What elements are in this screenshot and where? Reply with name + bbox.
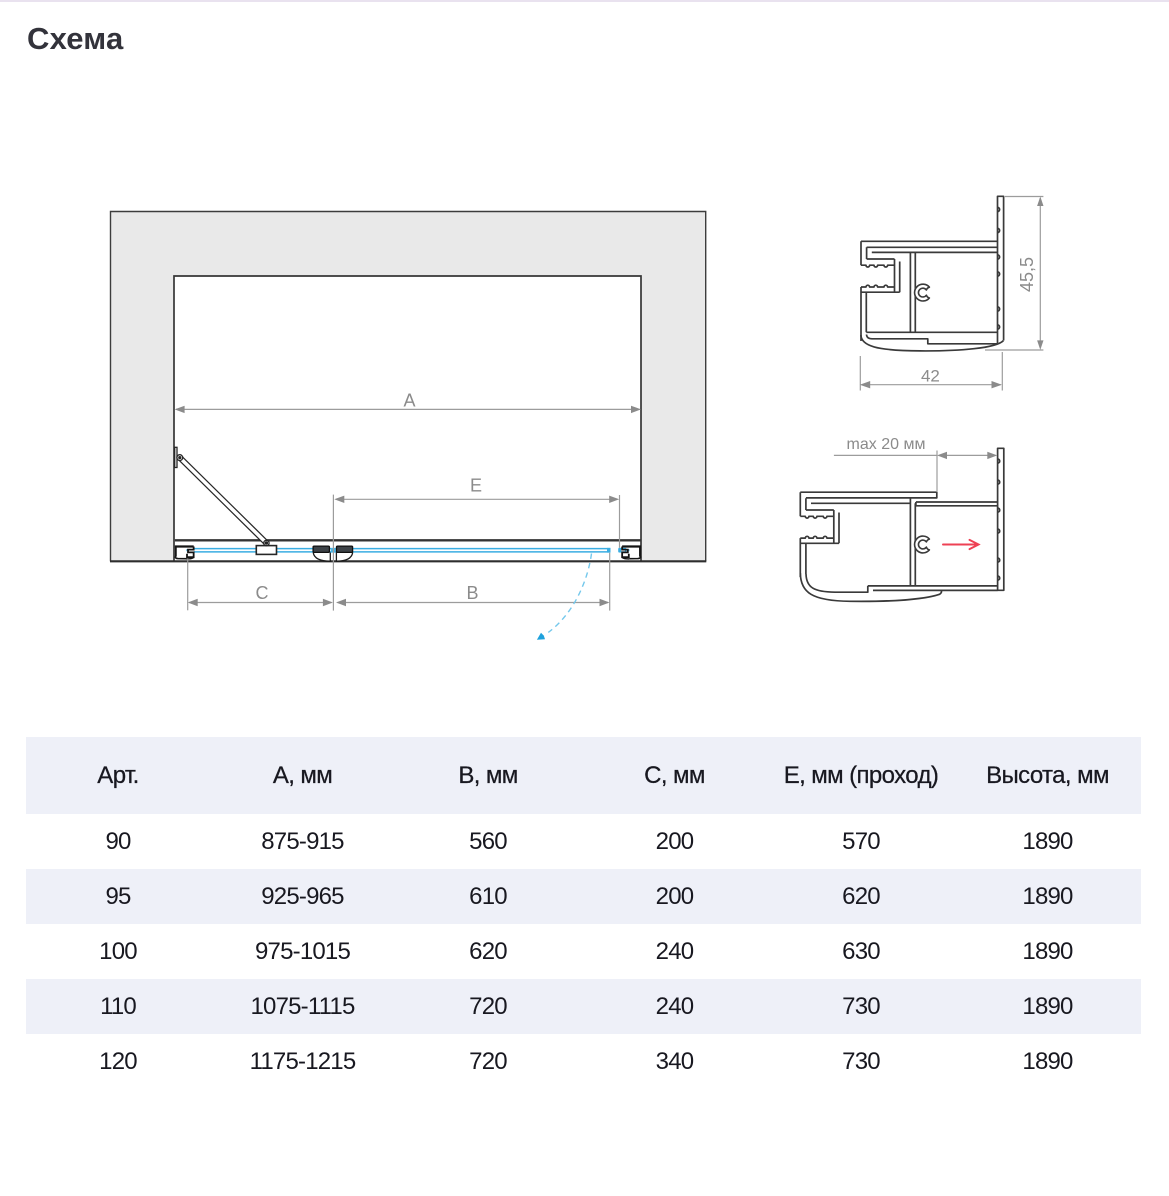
svg-text:45,5: 45,5 xyxy=(1017,257,1037,292)
svg-text:B: B xyxy=(466,583,478,603)
svg-text:C: C xyxy=(256,583,269,603)
svg-text:max 20 мм: max 20 мм xyxy=(847,436,926,453)
svg-text:E: E xyxy=(470,476,482,496)
svg-text:A: A xyxy=(403,390,415,410)
svg-text:42: 42 xyxy=(921,366,940,385)
